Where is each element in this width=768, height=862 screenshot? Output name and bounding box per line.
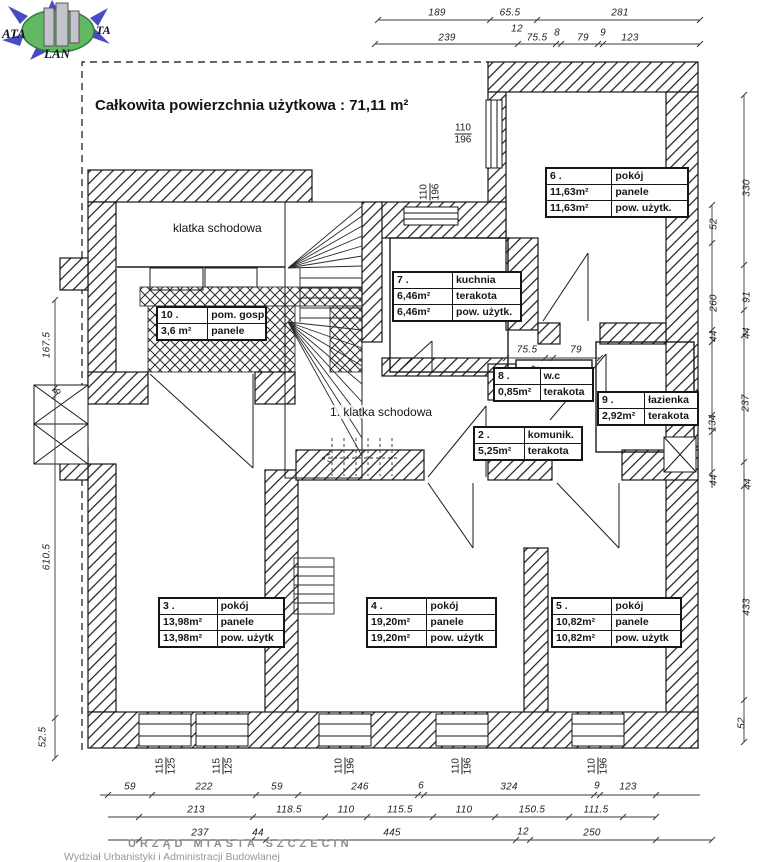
room-number: 7 . bbox=[394, 273, 452, 288]
room-area: 19,20m² bbox=[368, 614, 426, 630]
room-table-7: 7 . kuchnia 6,46m² terakota 6,46m² pow. … bbox=[392, 271, 522, 322]
room-number: 10 . bbox=[158, 308, 207, 323]
room-area2: 10,82m² bbox=[553, 630, 611, 646]
room-name: pokój bbox=[217, 599, 283, 614]
stamp-line2: Wydział Urbanistyki i Administracji Budo… bbox=[64, 851, 280, 862]
room-usable: pow. użytk bbox=[426, 630, 495, 646]
room-table-3: 3 . pokój 13,98m² panele 13,98m² pow. uż… bbox=[158, 597, 285, 648]
room-table-5: 5 . pokój 10,82m² panele 10,82m² pow. uż… bbox=[551, 597, 682, 648]
room-area: 13,98m² bbox=[160, 614, 217, 630]
room-floor: panele bbox=[611, 614, 680, 630]
room-usable: pow. użytk bbox=[217, 630, 283, 646]
floor-plan-drawing bbox=[0, 0, 768, 862]
page-title: Całkowita powierzchnia użytkowa : 71,11 … bbox=[95, 97, 408, 114]
room-name: w.c bbox=[540, 369, 592, 384]
room-name: pom. gosp. bbox=[207, 308, 265, 323]
room-number: 5 . bbox=[553, 599, 611, 614]
room-name: pokój bbox=[426, 599, 495, 614]
room-number: 3 . bbox=[160, 599, 217, 614]
room-area2: 19,20m² bbox=[368, 630, 426, 646]
room-area: 6,46m² bbox=[394, 288, 452, 304]
room-area: 2,92m² bbox=[599, 408, 644, 424]
room-floor: terakota bbox=[524, 443, 581, 459]
room-area: 3,6 m² bbox=[158, 323, 207, 339]
room-area2: 13,98m² bbox=[160, 630, 217, 646]
room-area: 0,85m² bbox=[495, 384, 540, 400]
room-floor: terakota bbox=[644, 408, 697, 424]
room-number: 8 . bbox=[495, 369, 540, 384]
room-floor: panele bbox=[611, 184, 687, 200]
room-floor: panele bbox=[217, 614, 283, 630]
room-floor: terakota bbox=[540, 384, 592, 400]
room-usable: pow. użytk bbox=[611, 630, 680, 646]
room-number: 6 . bbox=[547, 169, 611, 184]
stamp-line1: URZĄD MIASTA SZCZECIN bbox=[128, 838, 353, 850]
room-area: 5,25m² bbox=[475, 443, 524, 459]
room-area: 10,82m² bbox=[553, 614, 611, 630]
room-area2: 6,46m² bbox=[394, 304, 452, 320]
room-name: pokój bbox=[611, 169, 687, 184]
room-floor: panele bbox=[426, 614, 495, 630]
logo-text-right: TA bbox=[96, 23, 111, 37]
room-name: pokój bbox=[611, 599, 680, 614]
room-floor: panele bbox=[207, 323, 265, 339]
room-number: 9 . bbox=[599, 393, 644, 408]
room-usable: pow. użytk. bbox=[452, 304, 520, 320]
room-name: komunik. bbox=[524, 428, 581, 443]
small-steps bbox=[294, 558, 334, 614]
room-table-2: 2 . komunik. 5,25m² terakota bbox=[473, 426, 583, 461]
room-table-6: 6 . pokój 11,63m² panele 11,63m² pow. uż… bbox=[545, 167, 689, 218]
room-table-10: 10 . pom. gosp. 3,6 m² panele bbox=[156, 306, 267, 341]
room-number: 2 . bbox=[475, 428, 524, 443]
floor-plan-page: ATA TA LAN Całkowita powierzchnia użytko… bbox=[0, 0, 768, 862]
room-table-9: 9 . łazienka 2,92m² terakota bbox=[597, 391, 699, 426]
room-table-8: 8 . w.c 0,85m² terakota bbox=[493, 367, 594, 402]
logo-text-bottom: LAN bbox=[43, 46, 71, 61]
logo-buildings bbox=[44, 3, 79, 46]
logo: ATA TA LAN bbox=[0, 0, 118, 64]
room-name: kuchnia bbox=[452, 273, 520, 288]
room-number: 4 . bbox=[368, 599, 426, 614]
room-table-4: 4 . pokój 19,20m² panele 19,20m² pow. uż… bbox=[366, 597, 497, 648]
room-name: łazienka bbox=[644, 393, 697, 408]
room-floor: terakota bbox=[452, 288, 520, 304]
room-usable: pow. użytk. bbox=[611, 200, 687, 216]
staircase-upper-label: klatka schodowa bbox=[173, 221, 262, 235]
room-area: 11,63m² bbox=[547, 184, 611, 200]
room-area2: 11,63m² bbox=[547, 200, 611, 216]
logo-text-left: ATA bbox=[1, 26, 26, 41]
staircase-main-label: 1. klatka schodowa bbox=[328, 405, 434, 419]
